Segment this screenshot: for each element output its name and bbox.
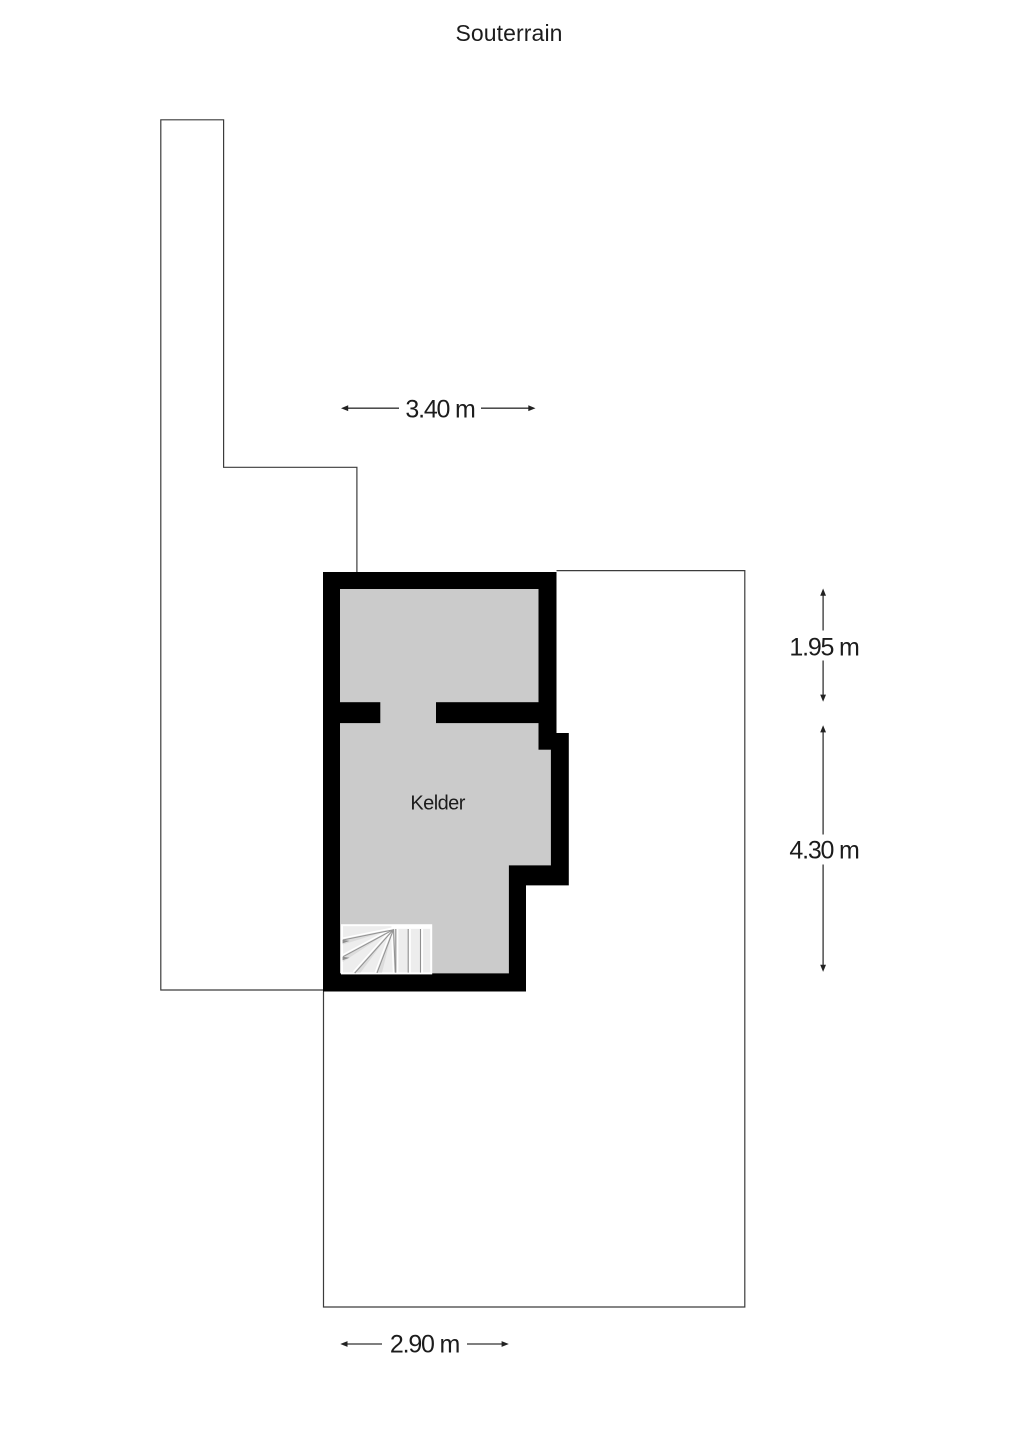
- svg-text:Kelder: Kelder: [410, 793, 465, 815]
- svg-text:1.95 m: 1.95 m: [789, 633, 859, 661]
- svg-text:3.40 m: 3.40 m: [405, 395, 475, 423]
- svg-text:4.30 m: 4.30 m: [789, 836, 859, 864]
- svg-text:2.90 m: 2.90 m: [390, 1331, 460, 1359]
- svg-text:Souterrain: Souterrain: [455, 20, 562, 46]
